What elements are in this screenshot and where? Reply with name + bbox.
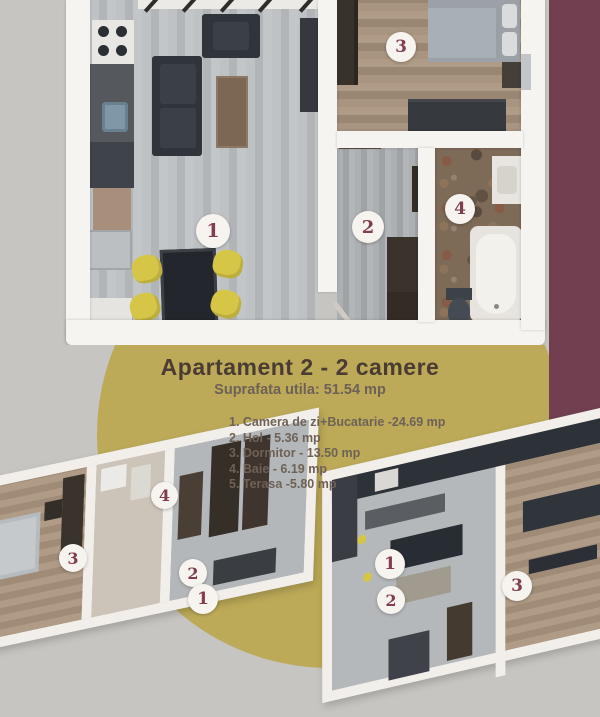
iso-cabinet	[388, 630, 429, 681]
bathtub-basin	[476, 234, 516, 314]
stove-burner	[116, 45, 127, 56]
armchair	[202, 14, 260, 58]
room-list: 1. Camera de zi+Bucatarie -24.69 mp 2. H…	[229, 415, 445, 493]
outer-wall-bottom	[66, 320, 545, 345]
bed	[428, 0, 520, 62]
room-number-badge: 3	[386, 32, 416, 62]
wall-living-hall	[318, 0, 337, 292]
room-number-badge: 4	[151, 482, 178, 509]
outer-wall-left	[66, 0, 90, 345]
hall-wardrobe	[387, 237, 418, 322]
room-number-badge: 1	[375, 549, 405, 579]
iso-nightstand	[44, 499, 62, 521]
iso-door	[178, 471, 204, 540]
bathtub	[470, 226, 522, 322]
iso-door	[447, 602, 472, 661]
iso-lamp	[357, 534, 366, 545]
bathtub-drain	[494, 304, 499, 309]
room-number-badge: 1	[196, 214, 230, 248]
iso-lamp	[363, 572, 372, 583]
dresser	[408, 99, 506, 131]
iso-island	[365, 493, 445, 530]
iso-bath-fixture	[130, 464, 151, 501]
room-list-item: 3. Dormitor - 13.50 mp	[229, 446, 445, 462]
kitchen-sink	[102, 102, 128, 132]
bedroom-window	[521, 54, 531, 90]
iso-bedroom-floor	[505, 435, 600, 650]
iso-wardrobe	[61, 474, 85, 553]
dining-table	[160, 248, 219, 328]
sofa-cushion	[160, 108, 196, 148]
sofa-cushion	[160, 64, 196, 104]
bed-pillow	[502, 4, 517, 28]
room-list-item: 2. Hol - 5.36 mp	[229, 431, 445, 447]
room-number-badge: 3	[59, 544, 87, 572]
tv-unit	[300, 18, 319, 112]
bed-pillow	[502, 32, 517, 56]
sofa	[152, 56, 202, 156]
stove	[92, 20, 134, 64]
kitchen-unit	[93, 188, 131, 230]
stove-burner	[116, 26, 127, 37]
room-number-badge: 2	[377, 586, 405, 614]
room-list-item: 5. Terasa -5.80 mp	[229, 477, 445, 493]
room-number-badge: 3	[502, 571, 532, 601]
room-number-badge: 4	[445, 194, 475, 224]
page-title: Apartament 2 - 2 camere	[0, 354, 600, 381]
armchair-cushion	[213, 22, 249, 50]
wall-bedroom-hall	[337, 131, 523, 148]
room-list-item: 1. Camera de zi+Bucatarie -24.69 mp	[229, 415, 445, 431]
wall-hall-bath	[418, 148, 435, 322]
room-number-badge: 2	[179, 559, 207, 587]
bed-blanket	[428, 8, 500, 58]
kitchen-end-cabinet	[86, 298, 132, 320]
iso-wall	[496, 465, 506, 678]
fridge	[87, 230, 132, 270]
room-number-badge: 2	[352, 211, 384, 243]
stove-burner	[98, 26, 109, 37]
usable-area-subtitle: Suprafata utila: 51.54 mp	[0, 382, 600, 398]
kitchen-cabinet	[88, 142, 134, 188]
bedroom-wardrobe	[337, 0, 358, 85]
main-floor-plan	[0, 0, 600, 345]
coffee-table	[216, 76, 248, 148]
outer-wall-right	[521, 0, 545, 330]
stove-burner	[98, 45, 109, 56]
bathroom-sink-basin	[497, 166, 517, 194]
bathroom-sink	[492, 156, 522, 204]
room-list-item: 4. Baie - 6.19 mp	[229, 462, 445, 478]
iso-bed-blanket	[0, 517, 37, 577]
room-number-badge: 1	[188, 584, 218, 614]
